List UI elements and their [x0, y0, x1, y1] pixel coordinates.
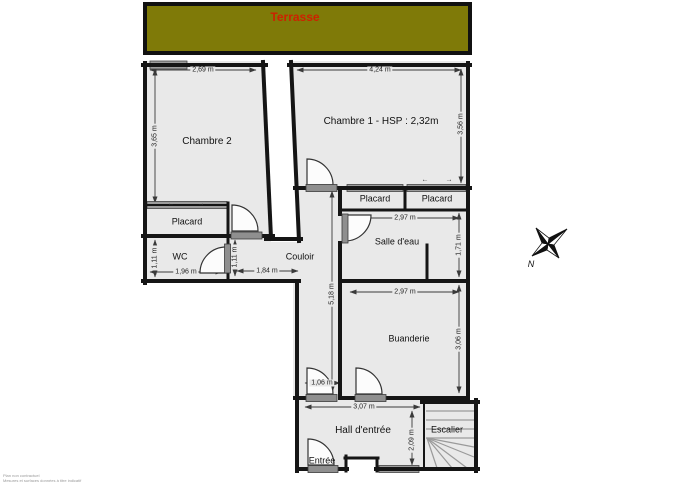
room-label-wc: WC	[173, 253, 188, 262]
slide-left-icon: ←	[168, 201, 175, 208]
terrace-label: Terrasse	[270, 10, 319, 24]
dim-salle-eau-height: 1,71 m	[456, 232, 463, 257]
room-label-placard2: Placard	[422, 195, 453, 204]
dim-chambre2-width: 2,69 m	[190, 67, 215, 74]
room-label-salle-eau: Salle d'eau	[375, 238, 419, 247]
dim-couloir-branch-width: 1,84 m	[254, 268, 279, 275]
compass-north-label: N	[528, 259, 535, 269]
room-label-chambre1: Chambre 1 - HSP : 2,32m	[324, 117, 439, 127]
room-label-escalier: Escalier	[431, 426, 463, 435]
room-label-hall: Hall d'entrée	[335, 426, 391, 436]
floor-plan: Terrasse Chambre 2 Chambre 1 - HSP : 2,3…	[0, 0, 700, 495]
dim-hall-passage-width: 1,06 m	[309, 380, 334, 387]
dim-couloir-length: 5,18 m	[329, 281, 336, 306]
dim-buanderie-width: 2,97 m	[392, 289, 417, 296]
dim-buanderie-height: 3,06 m	[456, 326, 463, 351]
dim-chambre2-height: 3,65 m	[152, 123, 159, 148]
room-label-placard-chambre2: Placard	[172, 218, 203, 227]
slide-left-icon: ←	[422, 177, 429, 184]
slide-right-icon: →	[198, 201, 205, 208]
dim-couloir-branch-height: 1,11 m	[232, 245, 239, 270]
dim-wc-height: 1,11 m	[152, 246, 159, 271]
dim-hall-height: 2,09 m	[409, 427, 416, 452]
dim-chambre1-height: 3,56 m	[458, 111, 465, 136]
slide-right-icon: →	[446, 177, 453, 184]
dim-wc-width: 1,96 m	[173, 269, 198, 276]
room-label-chambre2: Chambre 2	[182, 137, 231, 147]
room-label-buanderie: Buanderie	[388, 335, 429, 344]
dim-chambre1-width: 4,24 m	[367, 67, 392, 74]
watermark-line2: Mesures et surfaces données à titre indi…	[3, 479, 81, 483]
dim-salle-eau-width: 2,97 m	[392, 215, 417, 222]
floor-plan-graphics	[0, 0, 700, 495]
compass-icon	[532, 228, 567, 258]
room-label-placard1: Placard	[360, 195, 391, 204]
dim-hall-width: 3,07 m	[351, 404, 376, 411]
room-label-entree: Entrée	[309, 457, 336, 466]
room-label-couloir: Couloir	[286, 253, 315, 262]
